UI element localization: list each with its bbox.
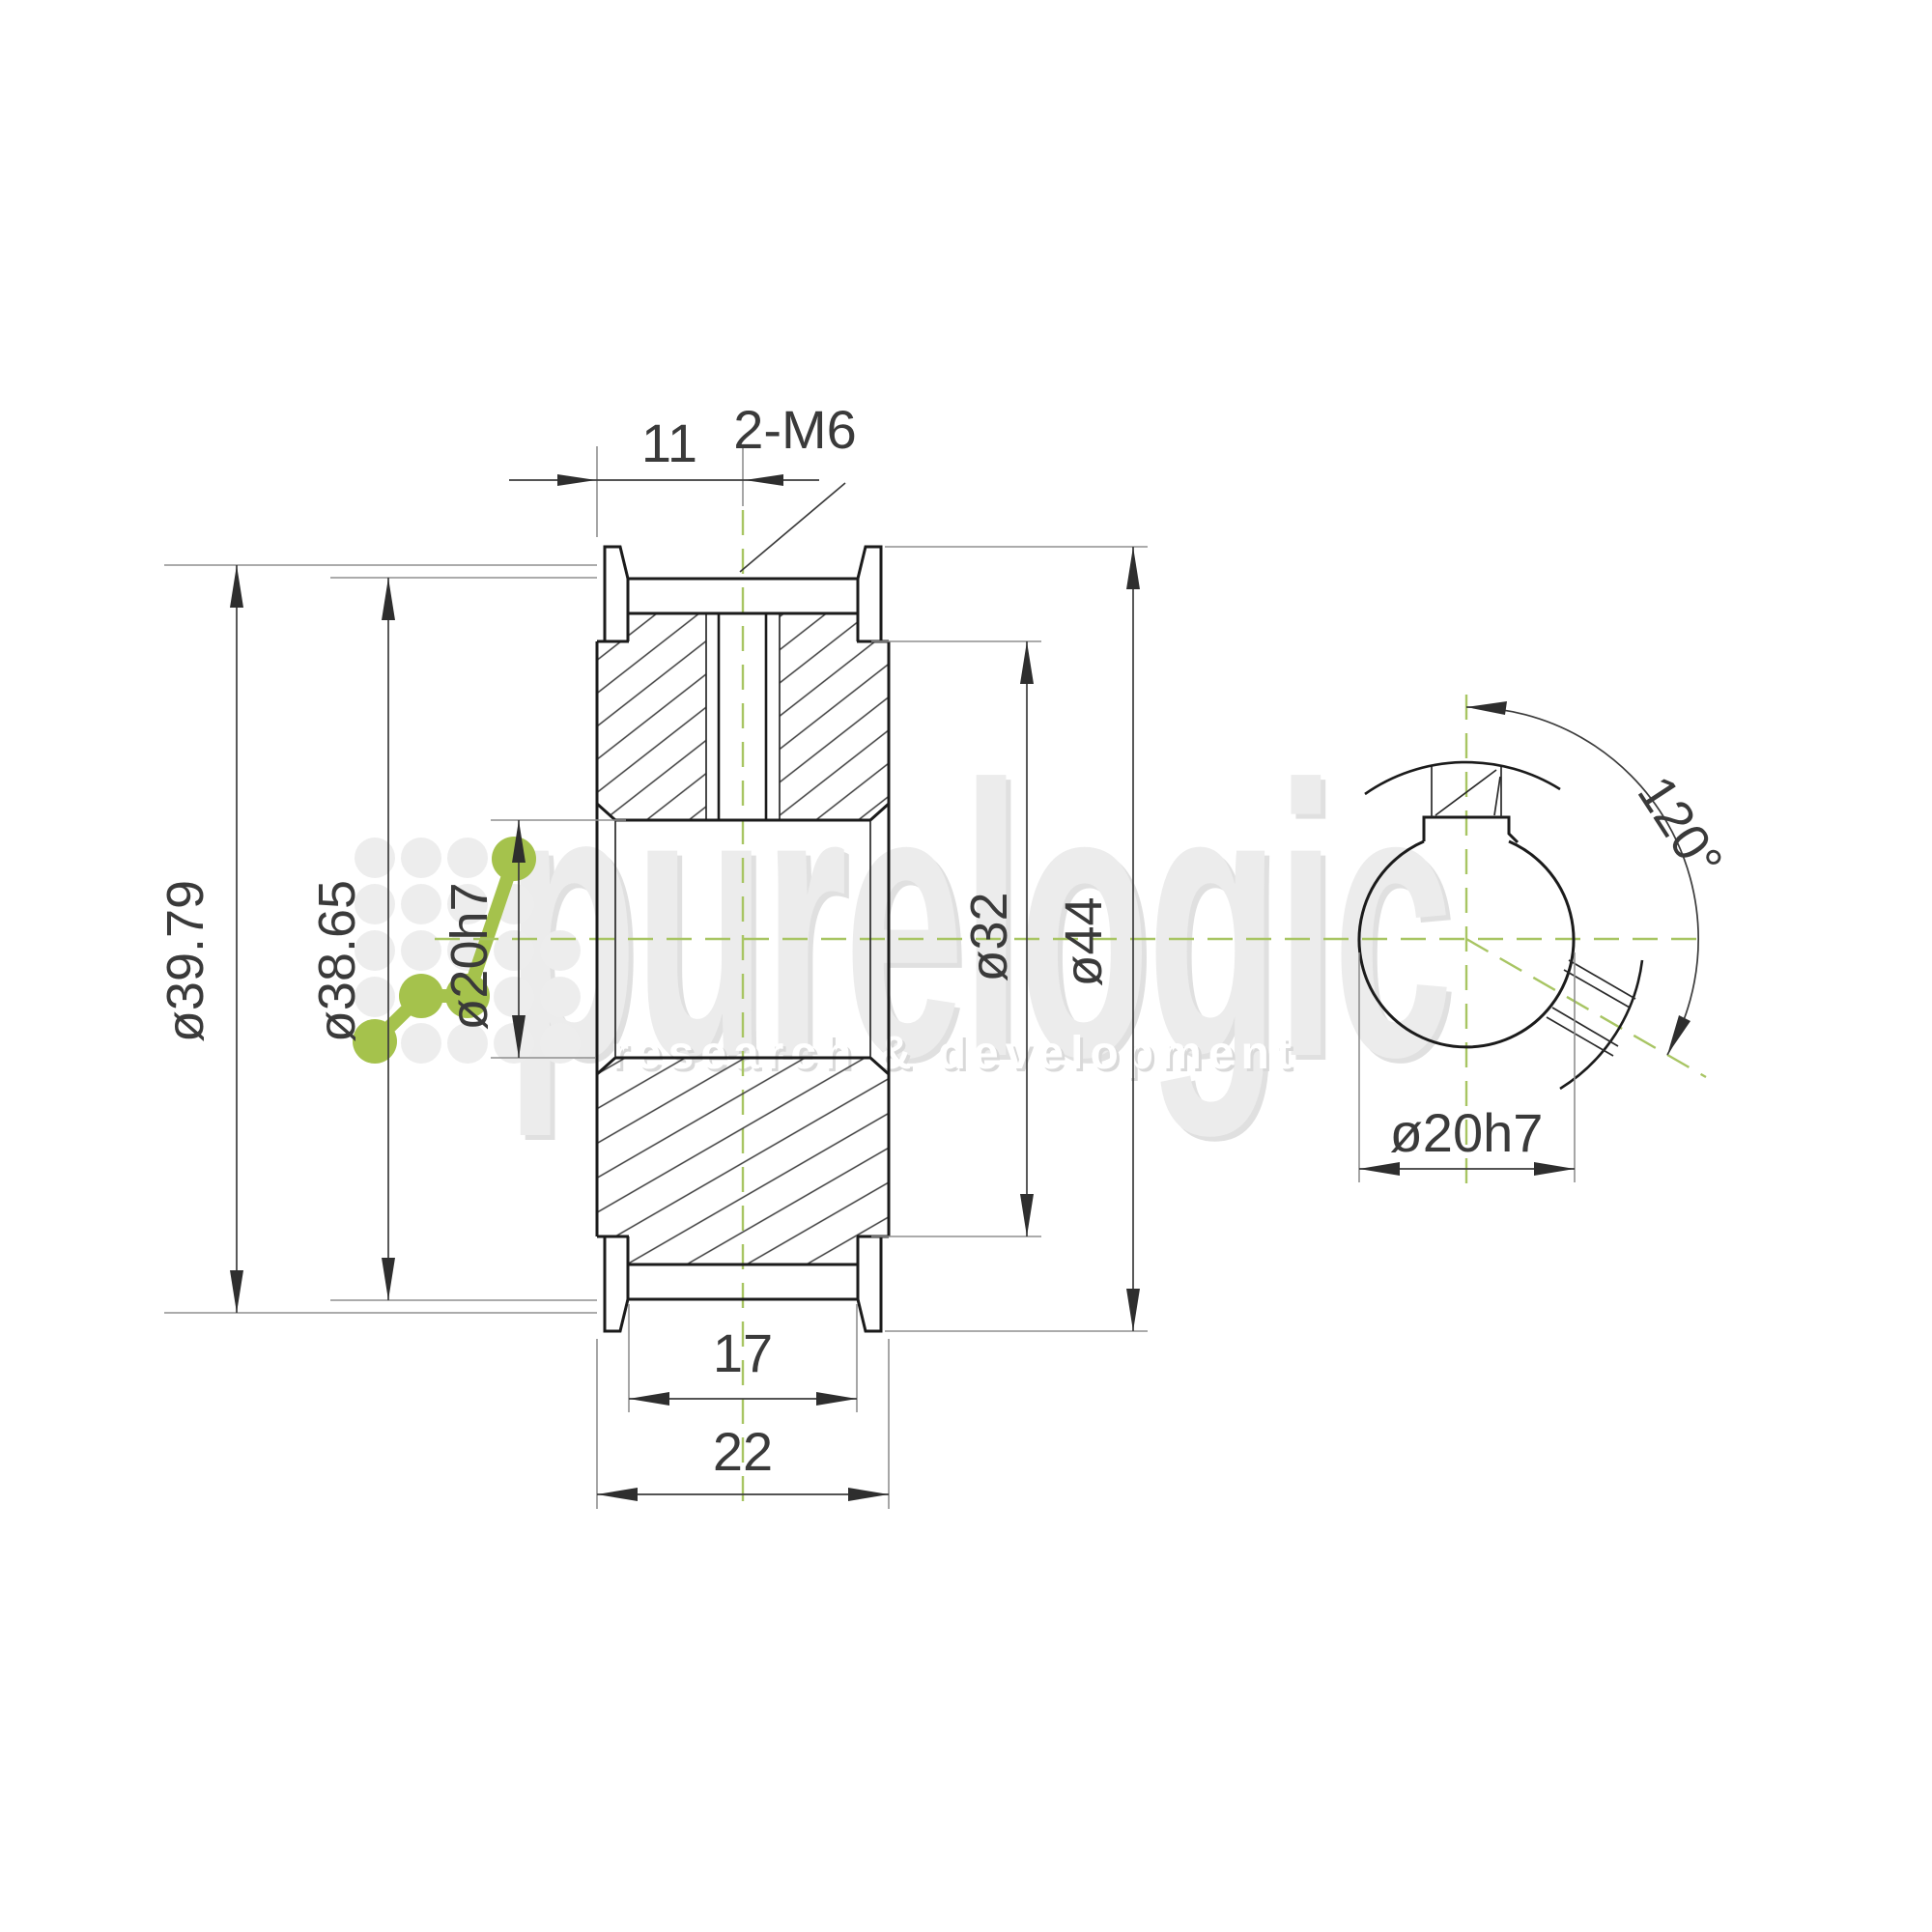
dim-outside-diameter-label: ø38.65: [308, 880, 366, 1042]
pulley-drawing: purelogic purelogic research & developme…: [0, 0, 1932, 1932]
dim-endview-bore-label: ø20h7: [1390, 1102, 1544, 1163]
dim-offset-to-center-label: 11: [641, 412, 697, 473]
dim-flange-diameter-label: ø44: [1055, 896, 1113, 986]
hatch-top-left: [597, 613, 706, 820]
hatch-top-right: [780, 613, 889, 820]
drawing-canvas: purelogic purelogic research & developme…: [0, 0, 1932, 1932]
dim-set-screws-label: 2-M6: [733, 399, 857, 460]
dim-hub-step-diameter-label: ø32: [960, 892, 1018, 981]
dim-overall-width-label: 22: [713, 1421, 773, 1482]
dim-inner-width-label: 17: [713, 1322, 773, 1383]
dim-bore-diameter-label: ø20h7: [440, 882, 498, 1030]
dim-pitch-diameter-label: ø39.79: [156, 880, 214, 1042]
watermark: purelogic purelogic research & developme…: [353, 705, 1455, 1144]
hatch-bottom: [597, 1058, 889, 1264]
